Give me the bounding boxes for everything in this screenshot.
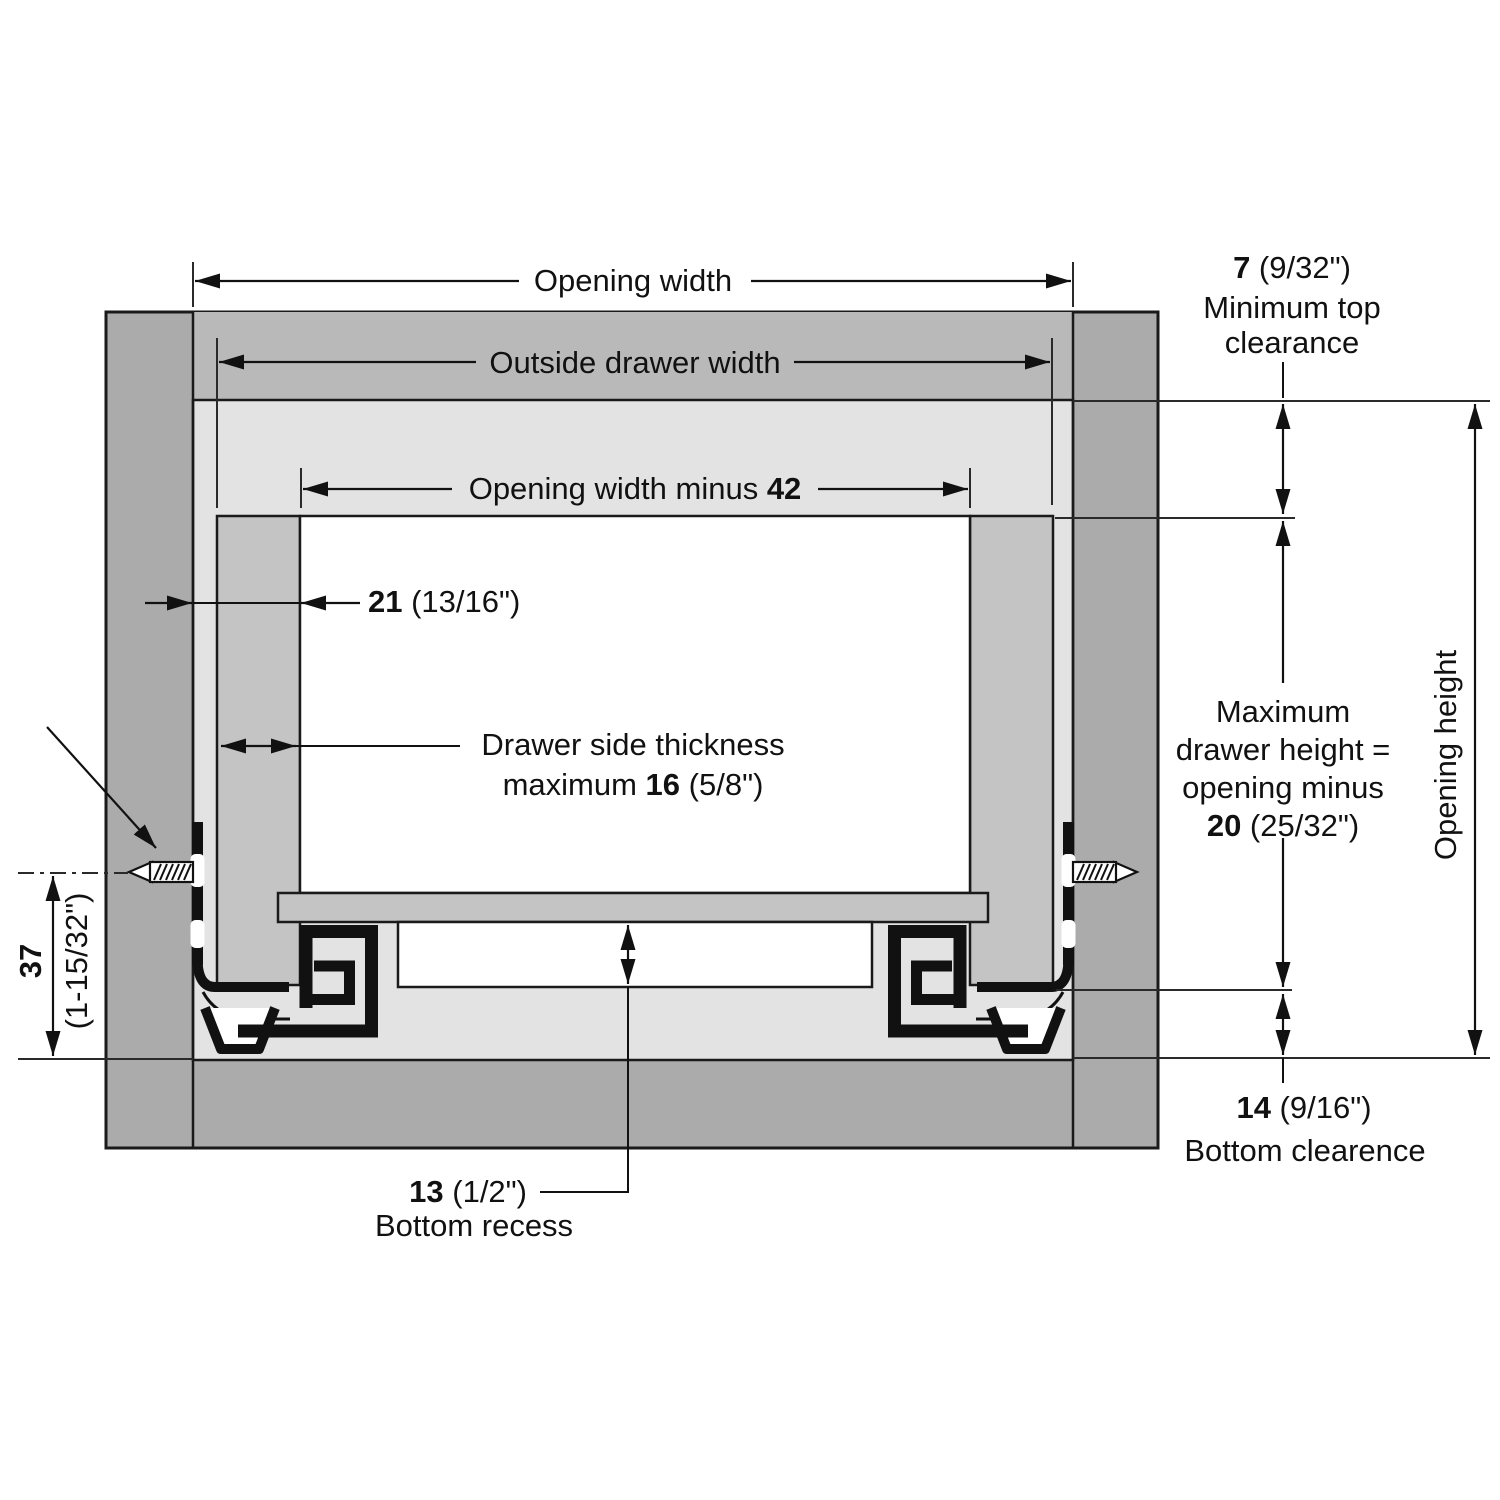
bottom-recess-line2: Bottom recess bbox=[375, 1208, 573, 1244]
bottom-clearance-line2: Bottom clearence bbox=[1184, 1133, 1425, 1169]
outside-drawer-width-label: Outside drawer width bbox=[489, 345, 780, 381]
max-drawer-height-line1: Maximum bbox=[1216, 694, 1350, 730]
side-thickness-line2: maximum 16 (5/8") bbox=[503, 767, 764, 803]
side-thickness-line1: Drawer side thickness bbox=[481, 727, 784, 763]
bottom-clearance-suffix: (9/16") bbox=[1271, 1090, 1372, 1125]
bottom-clearance-value-line: 14 (9/16") bbox=[1236, 1090, 1371, 1126]
drawer-bottom-panel bbox=[278, 893, 988, 922]
max-drawer-height-line2: drawer height = bbox=[1176, 732, 1391, 768]
side-thickness-suffix: (5/8") bbox=[680, 767, 763, 802]
side-thickness-text: maximum bbox=[503, 767, 646, 802]
max-drawer-height-line3: opening minus bbox=[1182, 770, 1384, 806]
mounting-height-suffix: (1-15/32") bbox=[59, 893, 95, 1030]
inner-width-value: 42 bbox=[767, 471, 801, 506]
side-gap-label: 21 (13/16") bbox=[368, 584, 520, 620]
drawer-slide-cross-section-diagram: Opening width Outside drawer width Openi… bbox=[0, 0, 1500, 1500]
bottom-recess-suffix: (1/2") bbox=[444, 1174, 527, 1209]
top-clearance-line3: clearance bbox=[1225, 325, 1359, 361]
max-drawer-height-value: 20 bbox=[1207, 808, 1241, 843]
inner-width-label: Opening width minus 42 bbox=[469, 471, 802, 507]
top-clearance-suffix: (9/32") bbox=[1250, 250, 1351, 285]
top-clearance-value-line: 7 (9/32") bbox=[1233, 250, 1351, 286]
side-gap-suffix: (13/16") bbox=[402, 584, 520, 619]
inner-width-text: Opening width minus bbox=[469, 471, 767, 506]
max-drawer-height-line4: 20 (25/32") bbox=[1207, 808, 1359, 844]
top-clearance-line2: Minimum top bbox=[1203, 290, 1380, 326]
bottom-clearance-value: 14 bbox=[1236, 1090, 1270, 1125]
drawer-interior bbox=[300, 516, 970, 893]
max-drawer-height-suffix: (25/32") bbox=[1241, 808, 1359, 843]
bottom-recess-value: 13 bbox=[409, 1174, 443, 1209]
side-thickness-value: 16 bbox=[646, 767, 680, 802]
bottom-recess-gap bbox=[398, 922, 872, 987]
bottom-recess-value-line: 13 (1/2") bbox=[409, 1174, 527, 1210]
top-clearance-value: 7 bbox=[1233, 250, 1250, 285]
side-gap-value: 21 bbox=[368, 584, 402, 619]
opening-height-label: Opening height bbox=[1428, 650, 1464, 860]
mounting-height-value: 37 bbox=[13, 944, 49, 978]
opening-width-label: Opening width bbox=[534, 263, 732, 299]
